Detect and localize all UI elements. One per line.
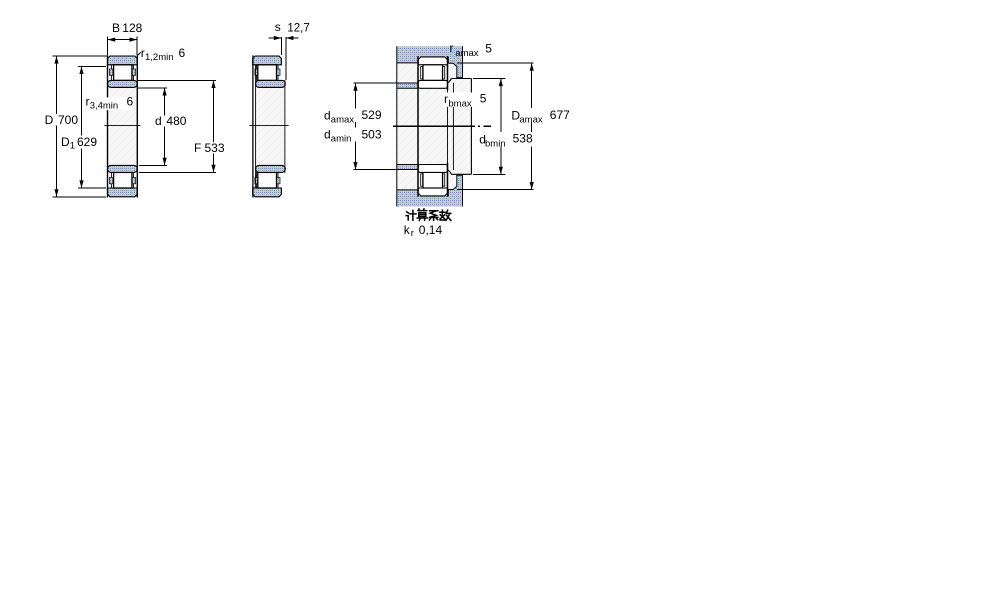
svg-text:5: 5 [480, 92, 487, 106]
svg-text:r: r [450, 41, 454, 55]
svg-text:d: d [324, 128, 331, 142]
svg-text:D: D [61, 135, 70, 149]
svg-text:1: 1 [70, 141, 75, 152]
svg-text:1,2min: 1,2min [145, 52, 174, 63]
svg-text:12,7: 12,7 [287, 23, 309, 35]
svg-text:B: B [112, 21, 120, 35]
svg-text:480: 480 [166, 114, 186, 128]
svg-text:503: 503 [362, 127, 382, 141]
svg-text:r: r [411, 228, 414, 239]
svg-text:bmin: bmin [485, 138, 506, 149]
svg-text:629: 629 [77, 135, 97, 149]
svg-text:6: 6 [127, 95, 134, 109]
svg-text:6: 6 [179, 46, 186, 60]
svg-text:amax: amax [455, 48, 478, 59]
svg-text:533: 533 [205, 141, 225, 155]
svg-text:bmax: bmax [448, 98, 471, 109]
svg-text:538: 538 [513, 132, 533, 146]
svg-text:D: D [45, 113, 54, 127]
svg-text:r: r [444, 92, 448, 106]
svg-text:s: s [275, 20, 281, 34]
svg-text:d: d [155, 114, 162, 128]
svg-text:3,4min: 3,4min [90, 101, 119, 112]
svg-text:128: 128 [122, 21, 142, 35]
svg-text:amin: amin [331, 134, 352, 145]
svg-text:amax: amax [519, 115, 542, 126]
svg-text:amax: amax [331, 115, 354, 126]
svg-text:d: d [324, 109, 331, 123]
svg-text:5: 5 [485, 42, 492, 56]
svg-text:529: 529 [362, 108, 382, 122]
svg-text:k: k [404, 223, 411, 237]
svg-text:0,14: 0,14 [419, 223, 443, 237]
svg-text:677: 677 [550, 108, 570, 122]
svg-text:F: F [194, 141, 201, 155]
svg-text:700: 700 [58, 113, 78, 127]
